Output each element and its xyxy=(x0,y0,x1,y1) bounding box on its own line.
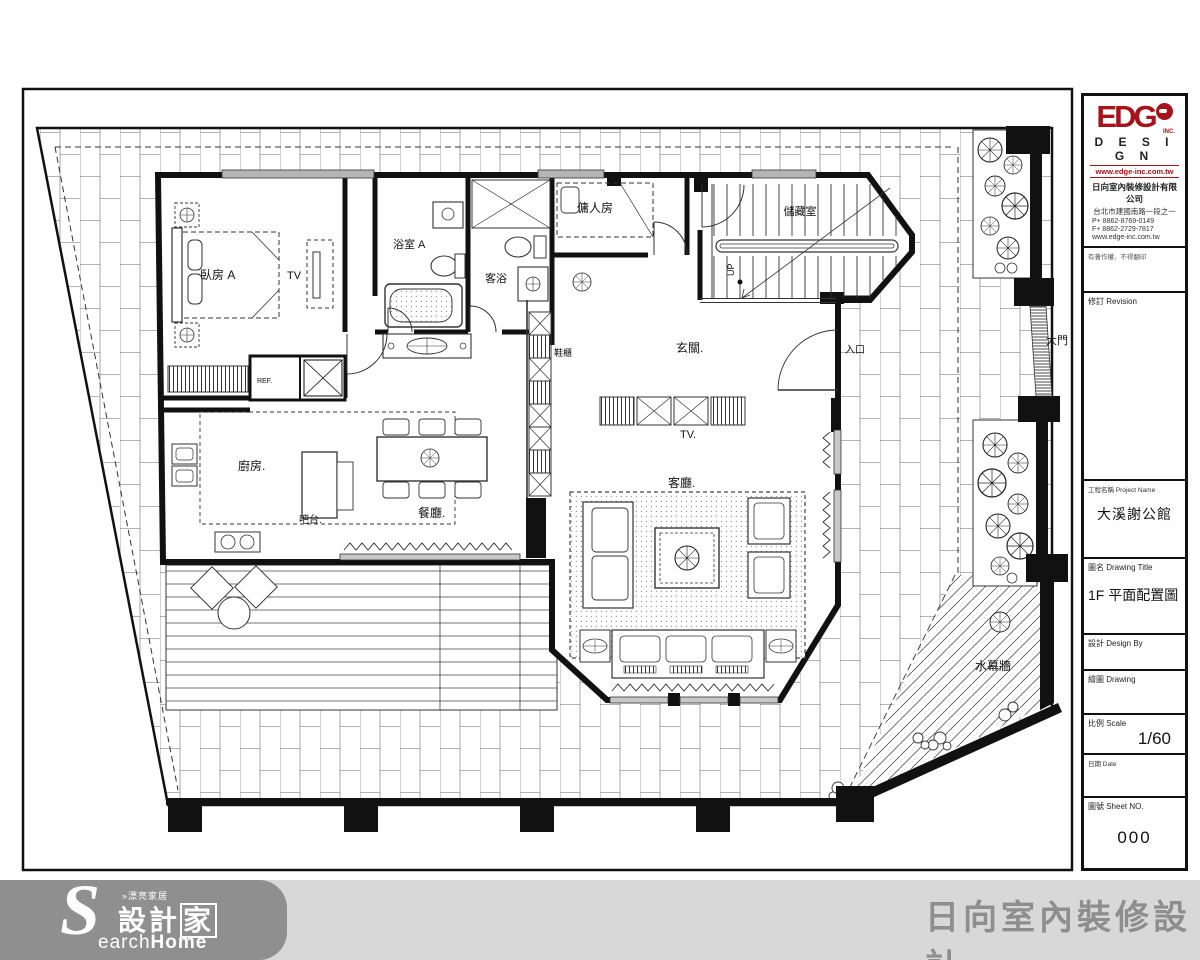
drawing-title: 1F 平面配置圖 xyxy=(1088,585,1181,605)
footer-bar: S »漂亮家居 設計家 earchHome 日向室內裝修設計 xyxy=(0,880,1200,960)
room-living xyxy=(570,492,805,678)
logo-design: D E S I G N xyxy=(1088,135,1181,163)
company-phone: P+ 8862-8769-0149 xyxy=(1092,218,1181,225)
kitchen-label: 廚房. xyxy=(238,458,265,473)
project-label: 工程名稱 Project Name xyxy=(1088,484,1181,494)
company-website: www.edge-inc.com.tw xyxy=(1092,234,1181,241)
entrance-label: 入口 xyxy=(845,345,865,356)
scale-value: 1/60 xyxy=(1088,729,1181,749)
drawing-by-section: 繪圖 Drawing xyxy=(1084,671,1185,715)
bedroom-a-label: 臥房 A xyxy=(200,267,235,282)
ref-label: REF. xyxy=(257,378,272,385)
searchhome-logo: S »漂亮家居 設計家 earchHome xyxy=(0,880,287,960)
project-name: 大溪謝公館 xyxy=(1088,504,1181,524)
shoe-cabinet-label: 鞋櫃 xyxy=(554,347,572,358)
dining-plant xyxy=(421,449,439,467)
foyer-plant xyxy=(573,273,591,291)
company-name: 日向室內裝修設計有限公司 xyxy=(1088,181,1181,205)
living-label: 客廳. xyxy=(668,475,695,490)
living-tv-label: TV. xyxy=(680,429,696,441)
gate-label: 大門 xyxy=(1046,333,1068,347)
searchhome-latin-bold: Home xyxy=(151,932,208,953)
water-wall-label: 水幕牆 xyxy=(975,658,1011,673)
bar-label: 吧台. xyxy=(299,513,322,526)
edge-logo: EDG xyxy=(1088,101,1181,132)
revision-section: 修訂 Revision xyxy=(1084,293,1185,481)
bedroom-tv-label: TV xyxy=(287,270,302,282)
copyright-section: 有著作權．不得翻印 xyxy=(1084,248,1185,293)
edge-logo-ball-icon xyxy=(1156,103,1173,120)
title-block: EDG INC. D E S I G N www.edge-inc.com.tw… xyxy=(1081,93,1188,871)
searchhome-latin-light: earch xyxy=(98,932,151,953)
drawing-title-label: 圖名 Drawing Title xyxy=(1088,562,1181,573)
coffee-table-plant xyxy=(675,546,699,570)
up-label: UP xyxy=(726,263,736,276)
logo-website: www.edge-inc.com.tw xyxy=(1090,165,1179,178)
sheet-number: 000 xyxy=(1088,828,1181,848)
hall-vanity xyxy=(383,334,471,358)
maid-label: 傭人房 xyxy=(577,200,613,215)
design-by-section: 設計 Design By xyxy=(1084,635,1185,671)
copyright-note: 有著作權．不得翻印 xyxy=(1088,251,1181,261)
searchhome-latin: earchHome xyxy=(98,932,207,954)
dining-label: 餐廳. xyxy=(418,505,445,520)
sheet-label: 圖號 Sheet NO. xyxy=(1088,801,1181,812)
sheet-section: 圖號 Sheet NO. 000 xyxy=(1084,798,1185,868)
footer-company-name: 日向室內裝修設計 xyxy=(925,890,1200,960)
drawing-sheet: 水幕牆 xyxy=(0,0,1200,960)
date-label: 日期 Date xyxy=(1088,758,1181,768)
toilet xyxy=(431,256,457,276)
tree xyxy=(990,612,1010,632)
wardrobe xyxy=(168,366,248,392)
design-by-label: 設計 Design By xyxy=(1088,638,1181,649)
scale-label: 比例 Scale xyxy=(1088,718,1181,729)
scale-section: 比例 Scale 1/60 xyxy=(1084,715,1185,755)
company-fax: F+ 8862-2729-7817 xyxy=(1092,226,1181,233)
deck xyxy=(166,565,557,710)
storage-label: 儲藏室 xyxy=(784,204,817,218)
project-section: 工程名稱 Project Name 大溪謝公館 xyxy=(1084,481,1185,559)
bath-a-label: 浴室 A xyxy=(393,237,426,251)
shoe-cabinet xyxy=(527,300,551,498)
company-address: 台北市建國南路一段之一 xyxy=(1088,206,1181,217)
stair-start-dot xyxy=(738,280,743,285)
searchhome-s-icon: S xyxy=(60,874,100,946)
logo-section: EDG INC. D E S I G N www.edge-inc.com.tw… xyxy=(1084,96,1185,248)
floor-plan: 水幕牆 xyxy=(0,0,1200,960)
drawing-by-label: 繪圖 Drawing xyxy=(1088,674,1181,685)
toilet xyxy=(505,237,531,257)
foyer-label: 玄關. xyxy=(676,340,703,355)
guest-bath-label: 客浴 xyxy=(485,271,507,285)
revision-label: 修訂 Revision xyxy=(1088,296,1181,307)
stair-rail xyxy=(716,240,898,252)
bar-island xyxy=(302,452,337,518)
drawing-title-section: 圖名 Drawing Title 1F 平面配置圖 xyxy=(1084,559,1185,635)
date-section: 日期 Date xyxy=(1084,755,1185,798)
edge-logo-text: EDG xyxy=(1096,101,1154,132)
